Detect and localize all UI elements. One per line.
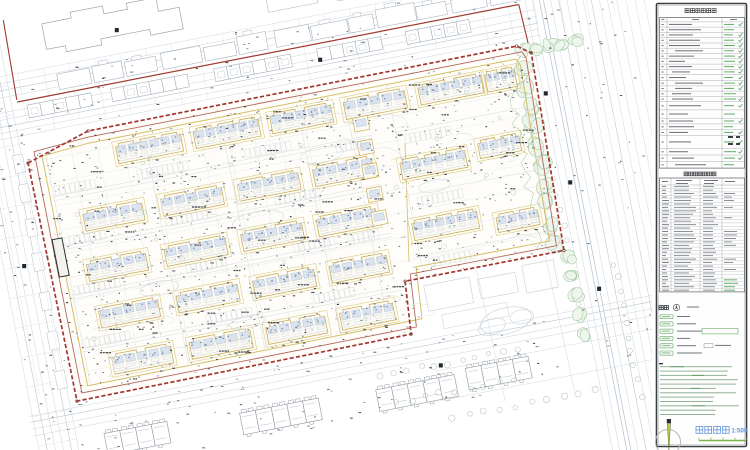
svg-text:1:500: 1:500 xyxy=(731,428,748,435)
